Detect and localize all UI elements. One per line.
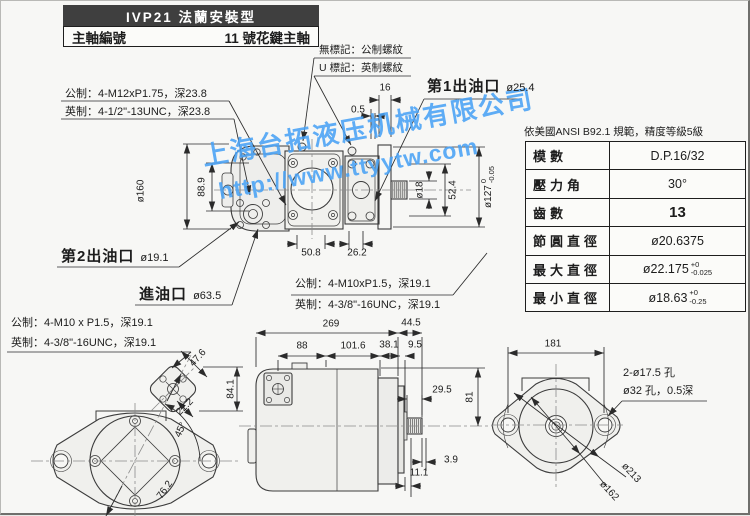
row-label: 模數 <box>526 142 610 169</box>
row-value: 13 <box>610 199 745 226</box>
pilot-value: ø127 <box>483 185 494 208</box>
inlet-label: 進油口 ø63.5 <box>139 286 221 303</box>
outlet1-diameter: ø25.4 <box>506 82 534 94</box>
value-number: ø22.175 <box>643 262 689 276</box>
spline-spec-table: 模數 D.P.16/32 壓力角 30° 齒數 13 節圓直徑 ø20.6375… <box>525 141 746 312</box>
inlet-name: 進油口 <box>139 286 187 303</box>
pilot-tolerance: 0 -0.05 <box>480 166 497 183</box>
outlet1-label: 第1出油口 ø25.4 <box>427 78 535 95</box>
row-value: ø20.6375 <box>610 227 745 254</box>
dim-9-5: 9.5 <box>408 340 422 351</box>
port2-spec-metric: 公制：4-M10 x P1.5，深19.1 <box>11 317 153 330</box>
inlet-diameter: ø63.5 <box>193 290 221 302</box>
row-value: 30° <box>610 170 745 197</box>
row-label: 節圓直徑 <box>526 227 610 254</box>
rear-holes-label: 2-ø17.5 孔 <box>623 367 675 380</box>
dim-84-1: 84.1 <box>226 379 237 398</box>
dim-3-9: 3.9 <box>444 455 458 466</box>
tolerance-stack: +0 -0.025 <box>691 261 712 278</box>
dim-11-1: 11.1 <box>410 468 429 479</box>
dim-rear-width: 181 <box>545 339 562 350</box>
dim-shaft-ext: 44.5 <box>401 318 420 329</box>
dim-29-5: 29.5 <box>432 385 451 396</box>
tolerance-lower: -0.025 <box>691 269 712 277</box>
spindle-value: 11 號花鍵主軸 <box>224 27 310 47</box>
spline-table-title: 依美國ANSI B92.1 規範，精度等級5級 <box>524 124 703 139</box>
note-imperial-thread: U 標記：英制螺紋 <box>319 62 403 74</box>
dim-port-height: 88.9 <box>197 177 208 196</box>
note-metric-thread: 無標記：公制螺紋 <box>319 44 403 56</box>
dim-shaft-len: 16 <box>379 83 390 94</box>
dim-shaft-height: 52.4 <box>448 180 459 199</box>
table-row: 最大直徑 ø22.175 +0 -0.025 <box>526 255 745 283</box>
outlet2-name: 第2出油口 <box>61 248 134 265</box>
dim-88: 88 <box>296 341 307 352</box>
table-row: 最小直徑 ø18.63 +0 -0.25 <box>526 283 745 311</box>
dim-shaft-offset: 0.5 <box>351 105 365 116</box>
outlet1-name: 第1出油口 <box>427 78 500 95</box>
value-number: ø18.63 <box>648 291 687 305</box>
port2-spec-imperial: 英制：4-3/8"-16UNC，深19.1 <box>11 337 156 350</box>
tolerance-stack: +0 -0.25 <box>689 289 706 306</box>
dim-port-span2: 26.2 <box>347 248 366 259</box>
table-row: 齒數 13 <box>526 198 745 226</box>
row-label: 齒數 <box>526 199 610 226</box>
table-row: 模數 D.P.16/32 <box>526 142 745 169</box>
table-row: 壓力角 30° <box>526 169 745 197</box>
row-value: D.P.16/32 <box>610 142 745 169</box>
row-label: 壓力角 <box>526 170 610 197</box>
outlet2-diameter: ø19.1 <box>140 252 168 264</box>
dim-shaft-dia: ø18 <box>415 181 426 198</box>
row-label: 最大直徑 <box>526 256 610 283</box>
spindle-label: 主軸編號 <box>72 27 126 47</box>
drawing-sheet: 上海台拓液压机械有限公司 http://www.ttyytw.com IVP21… <box>0 0 750 515</box>
dim-total-len: 269 <box>323 319 340 330</box>
dim-flange-od: ø160 <box>136 180 147 203</box>
outlet2-label: 第2出油口 ø19.1 <box>61 248 169 265</box>
port1-spec-metric: 公制：4-M10xP1.5，深19.1 <box>295 278 431 291</box>
flange-spec-metric: 公制：4-M12xP1.75，深23.8 <box>65 88 207 101</box>
rear-spotface-label: ø32 孔，0.5深 <box>623 385 693 398</box>
dim-101: 101.6 <box>340 341 365 352</box>
row-value: ø22.175 +0 -0.025 <box>610 256 745 283</box>
dim-81: 81 <box>465 391 476 402</box>
flange-spec-imperial: 英制：4-1/2"-13UNC，深23.8 <box>65 106 210 119</box>
row-value: ø18.63 +0 -0.25 <box>610 284 745 311</box>
pilot-tol-lower: -0.05 <box>488 166 496 183</box>
spindle-row: 主軸編號 11 號花鍵主軸 <box>63 26 319 47</box>
dim-port-span1: 50.8 <box>301 248 320 259</box>
dim-pilot-dia: ø127 0 -0.05 <box>480 166 497 208</box>
tolerance-lower: -0.25 <box>689 298 706 306</box>
port1-spec-imperial: 英制：4-3/8"-16UNC，深19.1 <box>295 299 440 312</box>
model-title-bar: IVP21 法蘭安裝型 <box>63 5 319 26</box>
row-label: 最小直徑 <box>526 284 610 311</box>
table-row: 節圓直徑 ø20.6375 <box>526 226 745 254</box>
dim-38: 38.1 <box>379 340 398 351</box>
